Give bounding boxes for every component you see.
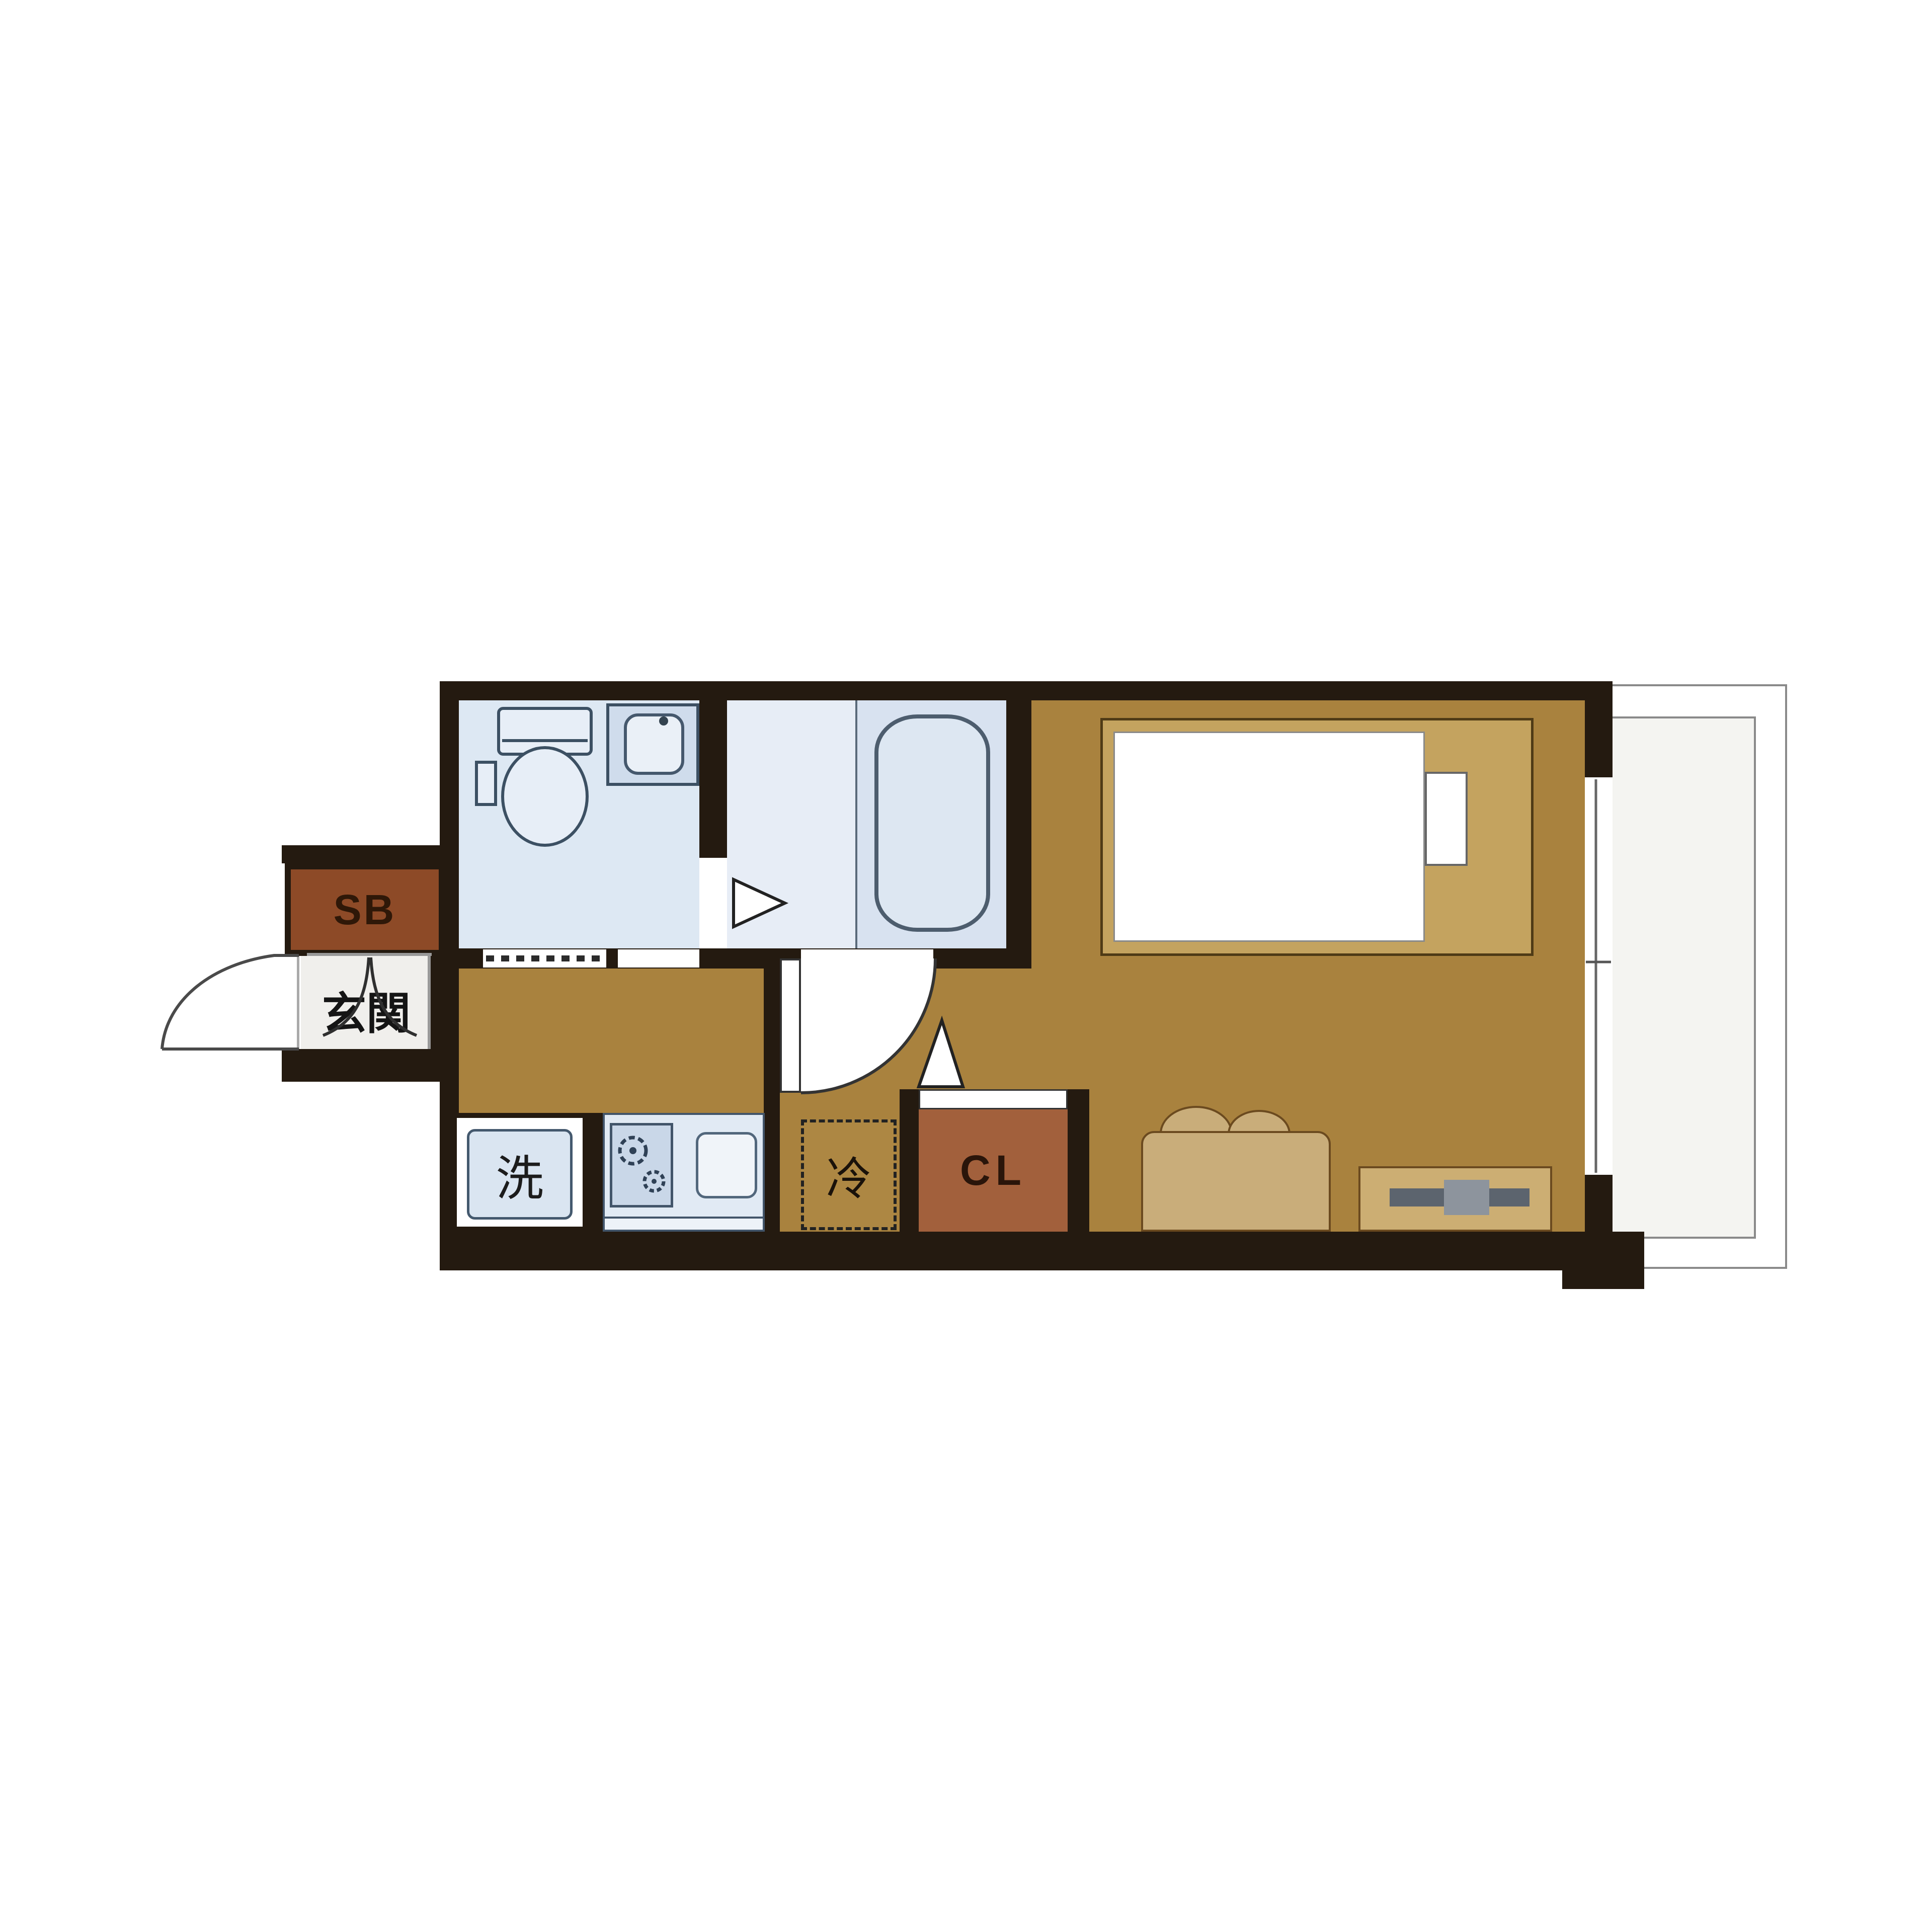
sliding-window [1585,777,1613,1175]
wall-entrance-bottom [282,1049,459,1082]
washing-machine-pan: 洗 [467,1129,573,1220]
balcony-floor [1613,716,1756,1239]
closet-label: CL [960,1146,1026,1195]
toilet-tank [497,707,593,756]
vanity-faucet-dot [659,716,668,726]
refrigerator-space: 冷 [801,1119,897,1230]
tv-stand [1444,1180,1489,1215]
kitchen-counter-front-band [605,1217,763,1230]
vanity-sink-bowl [624,713,684,775]
toilet-tank-lid-line [502,739,588,742]
closet-sliding-door [919,1089,1068,1109]
wall-closet-left [900,1089,919,1232]
sofa-body [1141,1131,1331,1232]
refrigerator-label: 冷 [826,1142,871,1207]
wall-right-upper [1585,681,1613,777]
entrance-door-jamb [297,956,299,1049]
wall-shoebox-top [282,845,440,863]
wall-bottom [440,1232,1562,1270]
wall-bathroom-room [1006,681,1031,969]
shoe-box-label: SB [334,886,396,934]
room-door-opening [801,949,933,968]
entrance-step-line-h [307,953,432,956]
bed-mattress [1113,732,1425,942]
wall-washer-divider [588,1113,603,1232]
folding-door-dashed-band [483,949,606,968]
bed-pillow [1425,772,1468,866]
bathroom-door-opening [699,858,727,948]
folding-door-dashes [486,955,603,961]
interior-door-leaf [780,958,801,1093]
washing-machine-label: 洗 [496,1140,543,1209]
kitchen-sink [696,1132,757,1198]
wall-kitchen-stub [764,948,780,1232]
entrance-area: 玄関 [301,971,432,1049]
toilet-door-opening [618,949,699,968]
closet: CL [919,1109,1068,1232]
wall-right-lower [1585,1175,1613,1232]
gas-stove [610,1123,673,1207]
wall-closet-right [1068,1089,1089,1232]
entrance-label: 玄関 [322,978,411,1042]
shoe-box: SB [285,863,445,956]
entrance-door-swing-arc [162,955,299,1049]
bathtub [874,714,990,932]
bathroom-floor-left [727,700,855,948]
floor-plan-canvas: SB 玄関 洗 冷 CL [0,0,1932,1932]
wall-corner-pillar-bottom-right [1562,1232,1644,1289]
toilet-flush-handle [475,761,497,806]
